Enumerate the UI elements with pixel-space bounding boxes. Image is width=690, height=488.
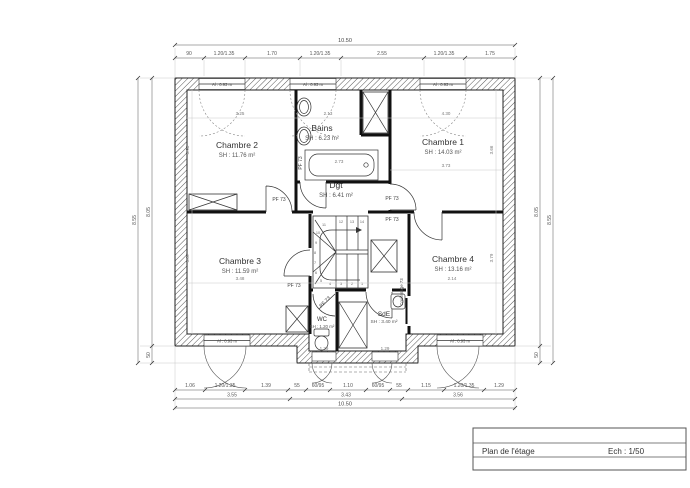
dim-ch3-height: 3.87	[185, 253, 190, 262]
door-label-chambre3: PF 73	[287, 283, 301, 289]
room-name-chambre2: Chambre 2	[216, 140, 258, 150]
room-name-chambre1: Chambre 1	[422, 137, 464, 147]
dim-bot1-1: 1.06	[185, 383, 195, 389]
sill-label-2: Al : 0.93 m	[303, 82, 324, 87]
stair-step-11: 11	[322, 223, 326, 227]
room-area-chambre3: SH : 11.59 m²	[222, 269, 259, 275]
dim-ch4-height: 3.79	[489, 253, 494, 262]
stair-step-7: 7	[314, 261, 316, 265]
door-label-bains: PF 73	[298, 156, 304, 170]
dim-right-outer: 8.55	[547, 215, 553, 225]
dim-ch2-width: 3.25	[236, 111, 245, 116]
dim-top-3: 1.70	[267, 51, 277, 57]
title-block-title: Plan de l'étage	[482, 447, 535, 456]
dim-bot1-10: 1.20/1.35	[454, 383, 475, 389]
dim-bot1-5: 60/95	[312, 383, 325, 389]
dim-top-6: 1.20/1.35	[434, 51, 455, 57]
dim-top-7: 1.75	[485, 51, 495, 57]
room-area-chambre1: SH : 14.03 m²	[424, 150, 461, 156]
door-label-chambre2: PF 73	[272, 197, 286, 203]
stair-step-8: 8	[314, 251, 316, 255]
sliding-door-label-sde: Coulissage 73	[399, 278, 404, 306]
dim-left-outer: 8.55	[132, 215, 138, 225]
dim-bot1-6: 1.10	[343, 383, 353, 389]
dim-bot1-2: 1.20/1.35	[215, 383, 236, 389]
stair-step-12: 12	[339, 220, 343, 224]
dim-sde-window: 1.29	[381, 346, 390, 351]
dim-right-low: 50	[534, 352, 540, 358]
stair-step-13: 13	[350, 220, 354, 224]
page-background	[0, 0, 690, 488]
window-sde	[372, 352, 398, 361]
sill-label-4: Al : 0.93 m	[217, 339, 238, 344]
door-label-chambre1: PF 73	[385, 196, 399, 202]
dim-ch1-width: 4.30	[442, 111, 451, 116]
room-area-wc: SH : 1.20 m²	[310, 324, 335, 329]
dim-top-1: 90	[186, 51, 192, 57]
stair-step-6: 6	[315, 271, 317, 275]
room-name-bains: Bains	[311, 123, 332, 133]
room-name-chambre3: Chambre 3	[219, 256, 261, 266]
dim-bottom-overall: 10.50	[338, 402, 352, 408]
dim-top-4: 1.20/1.35	[310, 51, 331, 57]
room-area-chambre2: SH : 11.76 m²	[219, 153, 256, 159]
stair-step-1: 1	[361, 282, 363, 286]
title-block: Plan de l'étage Ech : 1/50	[473, 428, 686, 470]
dim-top-5: 2.55	[377, 51, 387, 57]
room-name-wc: WC	[317, 317, 328, 323]
door-label-chambre4: PF 73	[385, 217, 399, 223]
dim-bot1-7: 60/95	[372, 383, 385, 389]
dim-bot1-4: 55	[294, 383, 300, 389]
dim-bot1-9: 1.15	[421, 383, 431, 389]
dim-bains-width: 2.13	[324, 111, 333, 116]
stair-step-5: 5	[320, 279, 322, 283]
room-area-bains: SH : 6.23 m²	[305, 136, 339, 142]
dim-right-inner: 8.05	[534, 207, 540, 217]
dim-left-low: 50	[146, 352, 152, 358]
dim-bath-length: 2.73	[335, 159, 344, 164]
dim-top-2: 1.20/1.35	[214, 51, 235, 57]
sill-label-5: Al : 0.93 m	[450, 339, 471, 344]
bathtub	[305, 150, 378, 180]
dim-bot2-3: 3.56	[453, 393, 463, 399]
floor-plan-canvas: Al : 0.93 m Al : 0.93 m Al : 0.93 m Al :…	[0, 0, 690, 488]
dim-ch1-height: 3.66	[489, 145, 494, 154]
dim-ch4-width: 2.14	[448, 276, 457, 281]
dim-wc-window: 1.29	[320, 346, 329, 351]
room-area-chambre4: SH : 13.16 m²	[434, 267, 471, 273]
dim-ch3-width: 3.48	[236, 276, 245, 281]
dim-bot1-8: 55	[396, 383, 402, 389]
dim-bot1-3: 1.39	[261, 383, 271, 389]
stair-step-2: 2	[351, 282, 353, 286]
dim-top-overall: 10.50	[338, 38, 352, 44]
stair-step-10: 10	[316, 231, 320, 235]
sill-label-3: Al : 0.93 m	[433, 82, 454, 87]
stair-step-14: 14	[360, 220, 364, 224]
bains-sink-1	[297, 98, 311, 116]
dim-bot2-1: 3.55	[227, 393, 237, 399]
dim-ch1-width2: 3.73	[442, 163, 451, 168]
window-wc	[312, 352, 336, 361]
room-name-sde: SdE	[378, 311, 391, 318]
stair-step-9: 9	[315, 241, 317, 245]
room-area-sde: SH : 3.40 m²	[371, 319, 398, 325]
room-name-chambre4: Chambre 4	[432, 254, 474, 264]
dim-bot2-2: 3.43	[341, 393, 351, 399]
stair-step-3: 3	[340, 282, 342, 286]
dim-ch2-height: 3.93	[185, 145, 190, 154]
room-area-dgt: SH : 6.41 m²	[319, 193, 353, 199]
room-name-dgt: Dgt	[329, 180, 343, 190]
stair-step-4: 4	[329, 282, 331, 286]
sill-label-1: Al : 0.93 m	[212, 82, 233, 87]
dim-left-inner: 8.05	[146, 207, 152, 217]
title-block-scale: Ech : 1/50	[608, 447, 645, 456]
dim-bot1-11: 1.29	[494, 383, 504, 389]
